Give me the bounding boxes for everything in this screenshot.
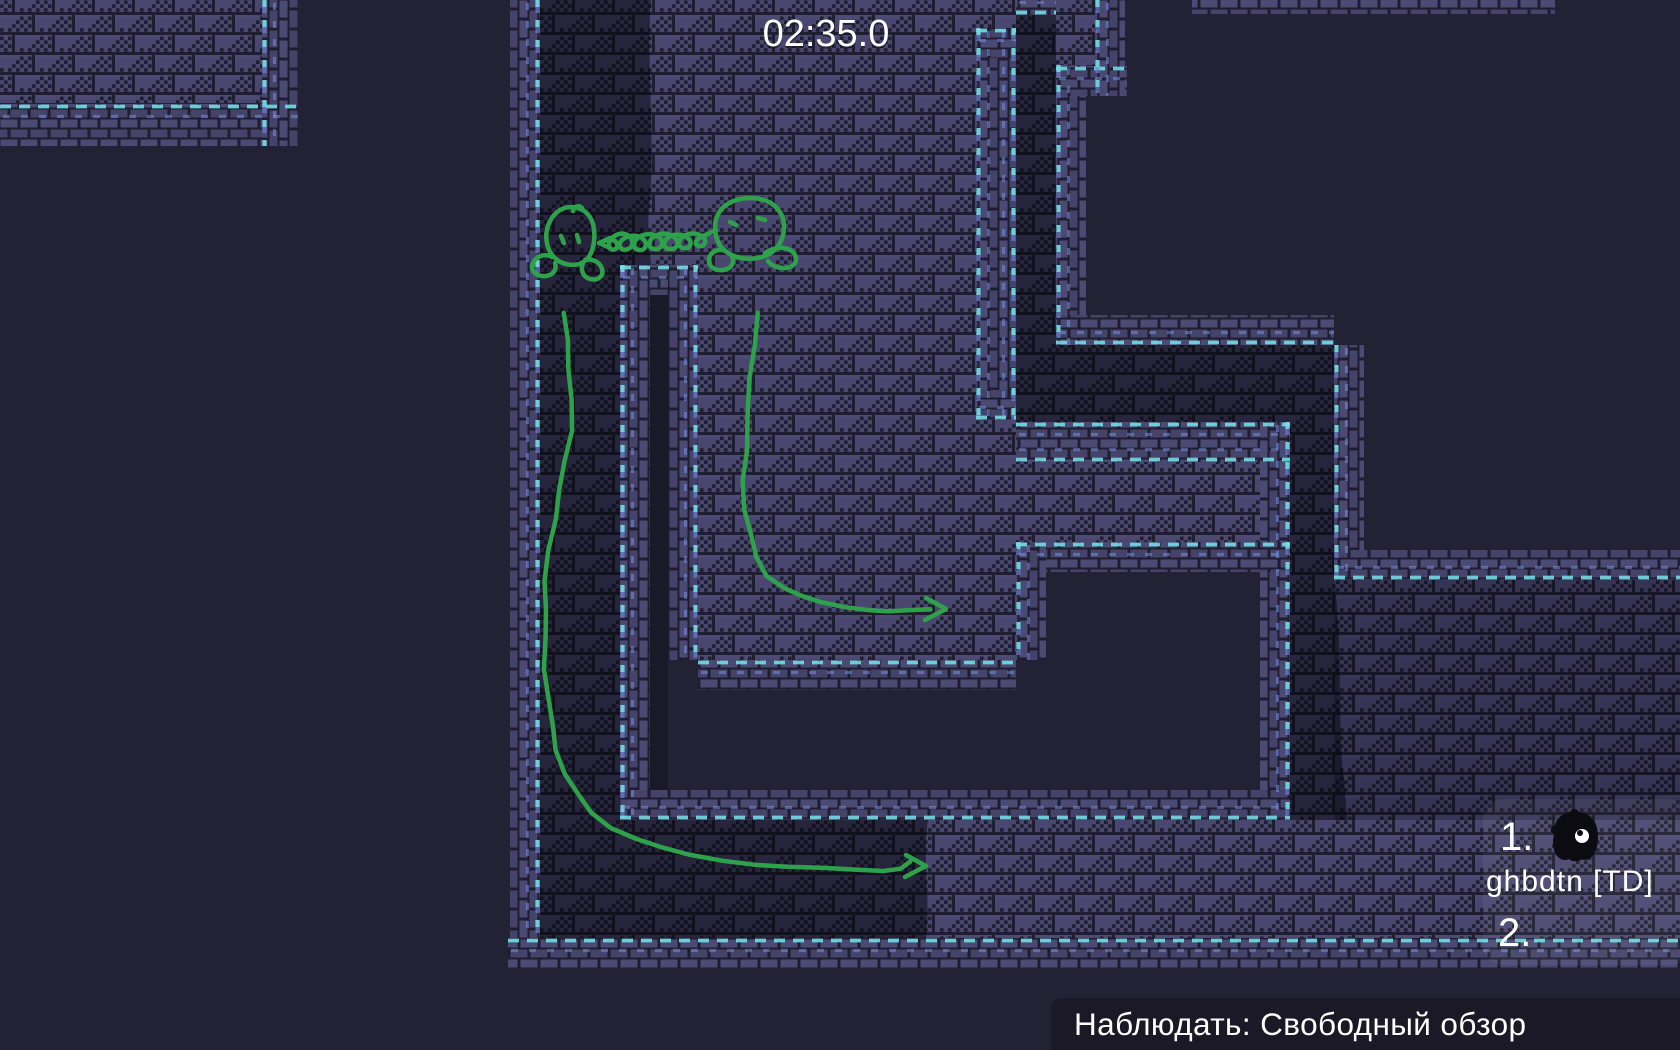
svg-text:Наблюдать: Свободный обзор: Наблюдать: Свободный обзор — [1074, 1006, 1526, 1042]
svg-text:1.: 1. — [1500, 815, 1533, 859]
svg-text:2.: 2. — [1498, 911, 1531, 955]
svg-text:02:35.0: 02:35.0 — [763, 13, 890, 55]
svg-text:ghbdtn [TD]: ghbdtn [TD] — [1486, 865, 1654, 898]
